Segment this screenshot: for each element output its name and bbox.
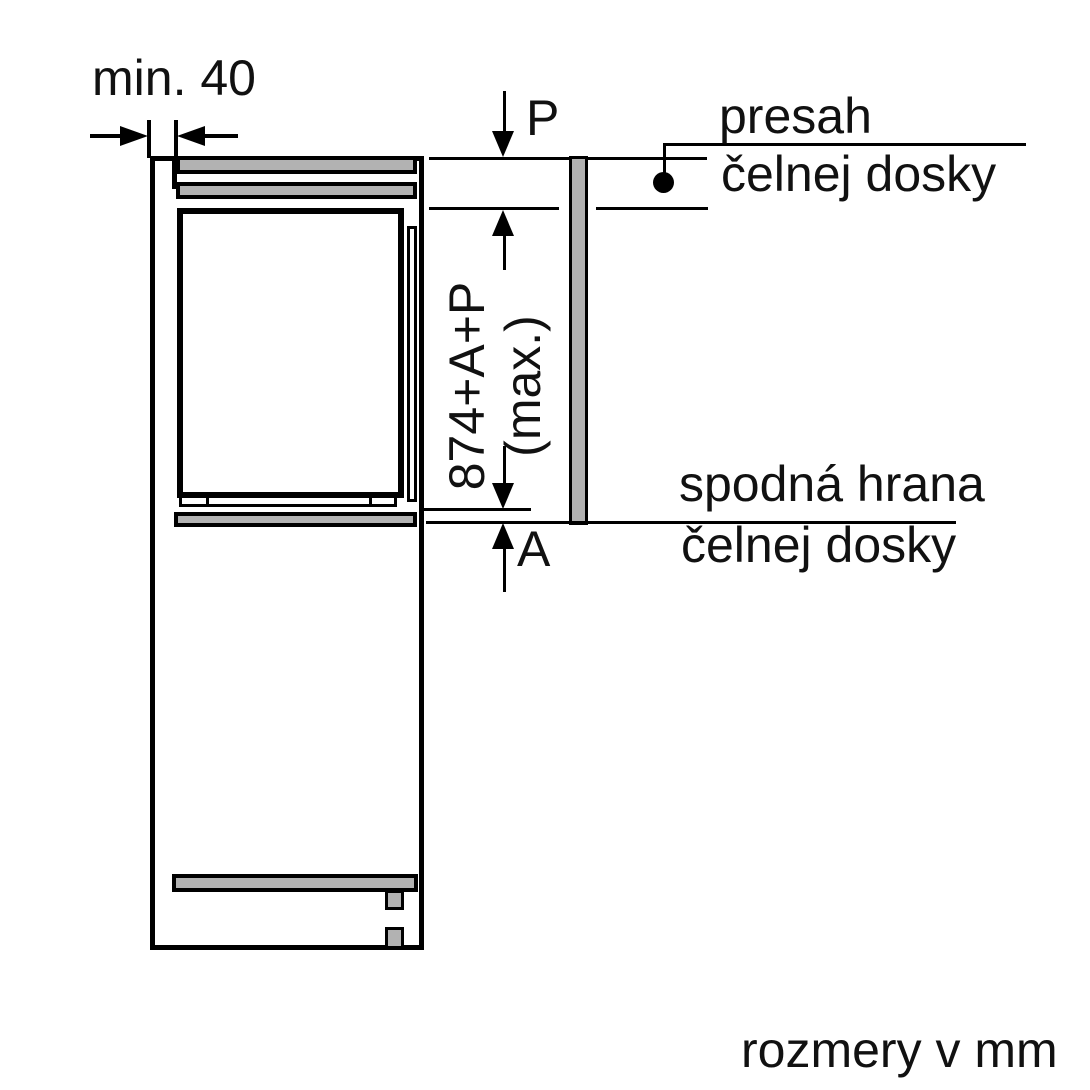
bottom-shelf [172,874,418,892]
min40-left-arrow-shaft [90,134,124,138]
a-arrow-shaft [503,547,506,592]
overhang-label-line2: čelnej dosky [721,146,996,202]
min-gap-label: min. 40 [92,50,256,106]
under-door-line [179,504,397,507]
bottom-edge-label-line2: čelnej dosky [681,517,956,573]
niche-height-formula-line2: (max.) [495,246,551,526]
shelf-hanging-tab [385,890,404,910]
dim-a-label: A [517,521,550,577]
under-door-panel-bar [174,512,417,527]
ref-line-top-left [429,157,569,160]
p-arrow-down-icon [492,131,514,157]
ref-line-mid-right [596,207,708,210]
under-door-tick-4 [394,497,397,507]
front-panel-side-view [569,156,588,525]
min40-extension-tick-2 [174,120,178,158]
min40-right-arrow-shaft [203,134,238,138]
top-panel-strip-upper [176,156,417,174]
bottom-edge-label-line1: spodná hrana [679,456,985,512]
ref-line-top-right [588,157,707,160]
units-note-label: rozmery v mm [741,1022,1058,1078]
overhang-label-line1: presah [719,88,872,144]
installation-diagram: min. 40 P presah čelnej dosky 874+A+P (m… [0,0,1090,1090]
door-side-trim-strip [407,226,417,502]
top-panel-strip-lower [176,182,417,199]
under-door-tick-2 [206,497,209,507]
under-door-tick-3 [369,497,372,507]
a-arrow-up-icon [492,523,514,549]
dim874-arrow-up-icon [492,210,514,236]
under-door-tick-1 [179,497,182,507]
min40-extension-tick-1 [147,120,151,158]
appliance-door-front [177,208,404,498]
niche-height-formula-line1: 874+A+P [439,246,495,526]
p-arrow-shaft [503,91,506,135]
min40-arrow-right-icon [120,126,148,146]
floor-tab [385,927,404,949]
dim-p-label: P [526,90,559,146]
overhang-leader-dot-icon [653,172,674,193]
niche-height-formula-label: 874+A+P (max.) [439,246,551,526]
min40-arrow-left-icon [177,126,205,146]
